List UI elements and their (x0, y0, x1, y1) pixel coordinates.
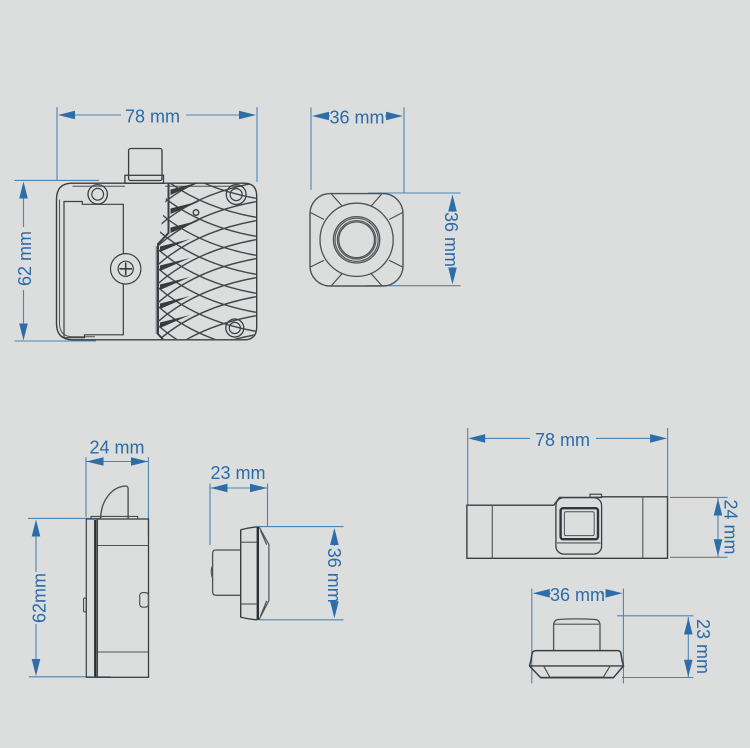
svg-text:78 mm: 78 mm (535, 430, 590, 450)
svg-text:36 mm: 36 mm (441, 212, 461, 267)
svg-text:36 mm: 36 mm (550, 585, 605, 605)
svg-text:24 mm: 24 mm (721, 499, 741, 554)
svg-text:62mm: 62mm (30, 573, 50, 623)
svg-text:36 mm: 36 mm (324, 548, 344, 603)
svg-text:62 mm: 62 mm (15, 231, 35, 286)
svg-text:23 mm: 23 mm (210, 463, 265, 483)
svg-text:36 mm: 36 mm (329, 108, 384, 128)
svg-text:78 mm: 78 mm (125, 107, 180, 127)
svg-text:23 mm: 23 mm (693, 619, 713, 674)
svg-text:24 mm: 24 mm (89, 437, 144, 457)
